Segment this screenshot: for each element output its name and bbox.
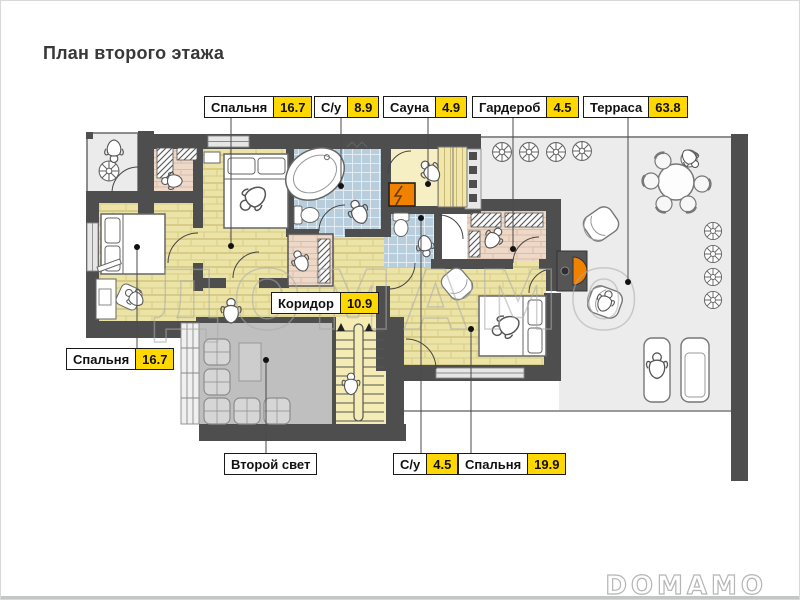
room-area-badge: 19.9 [527,454,565,474]
room-name: Спальня [67,349,135,369]
room-label-terrace: Терраса 63.8 [583,96,688,118]
room-name: Спальня [459,454,527,474]
watermark-text: ДОМАМО [149,254,648,349]
room-area-badge: 4.9 [435,97,466,117]
room-label-void: Второй свет [224,453,317,475]
room-label-bath-top: С/у 8.9 [314,96,379,118]
brand-logo: DOMAMO [605,571,767,599]
room-label-sauna: Сауна 4.9 [383,96,467,118]
room-name: Сауна [384,97,435,117]
room-name: Спальня [205,97,273,117]
room-label-bedroom-bottom: Спальня 19.9 [458,453,566,475]
room-area-badge: 4.5 [546,97,577,117]
room-area-badge: 10.9 [340,293,378,313]
room-name: С/у [315,97,347,117]
room-area-badge: 4.5 [426,454,457,474]
room-name: Второй свет [225,454,316,474]
room-area-badge: 16.7 [135,349,173,369]
floor-plan-page: ДОМАМО DOMAMO План второго этажа Спальня… [0,0,800,600]
floor-plan-drawing: ДОМАМО DOMAMO [1,1,799,599]
room-label-bedroom-top: Спальня 16.7 [204,96,312,118]
room-name: С/у [394,454,426,474]
toilet-bottom-icon [393,213,409,237]
plant-icon [99,161,119,181]
room-name: Гардероб [473,97,546,117]
room-name: Терраса [584,97,648,117]
page-title: План второго этажа [43,43,224,64]
room-area-badge: 63.8 [648,97,686,117]
toilet-icon [294,206,319,224]
room-name: Коридор [272,293,340,313]
footer-divider [1,596,799,599]
room-area-badge: 8.9 [347,97,378,117]
room-label-wardrobe: Гардероб 4.5 [472,96,579,118]
room-label-corridor: Коридор 10.9 [271,292,379,314]
room-label-bath-bottom: С/у 4.5 [393,453,458,475]
room-area-badge: 16.7 [273,97,311,117]
room-label-bedroom-left: Спальня 16.7 [66,348,174,370]
